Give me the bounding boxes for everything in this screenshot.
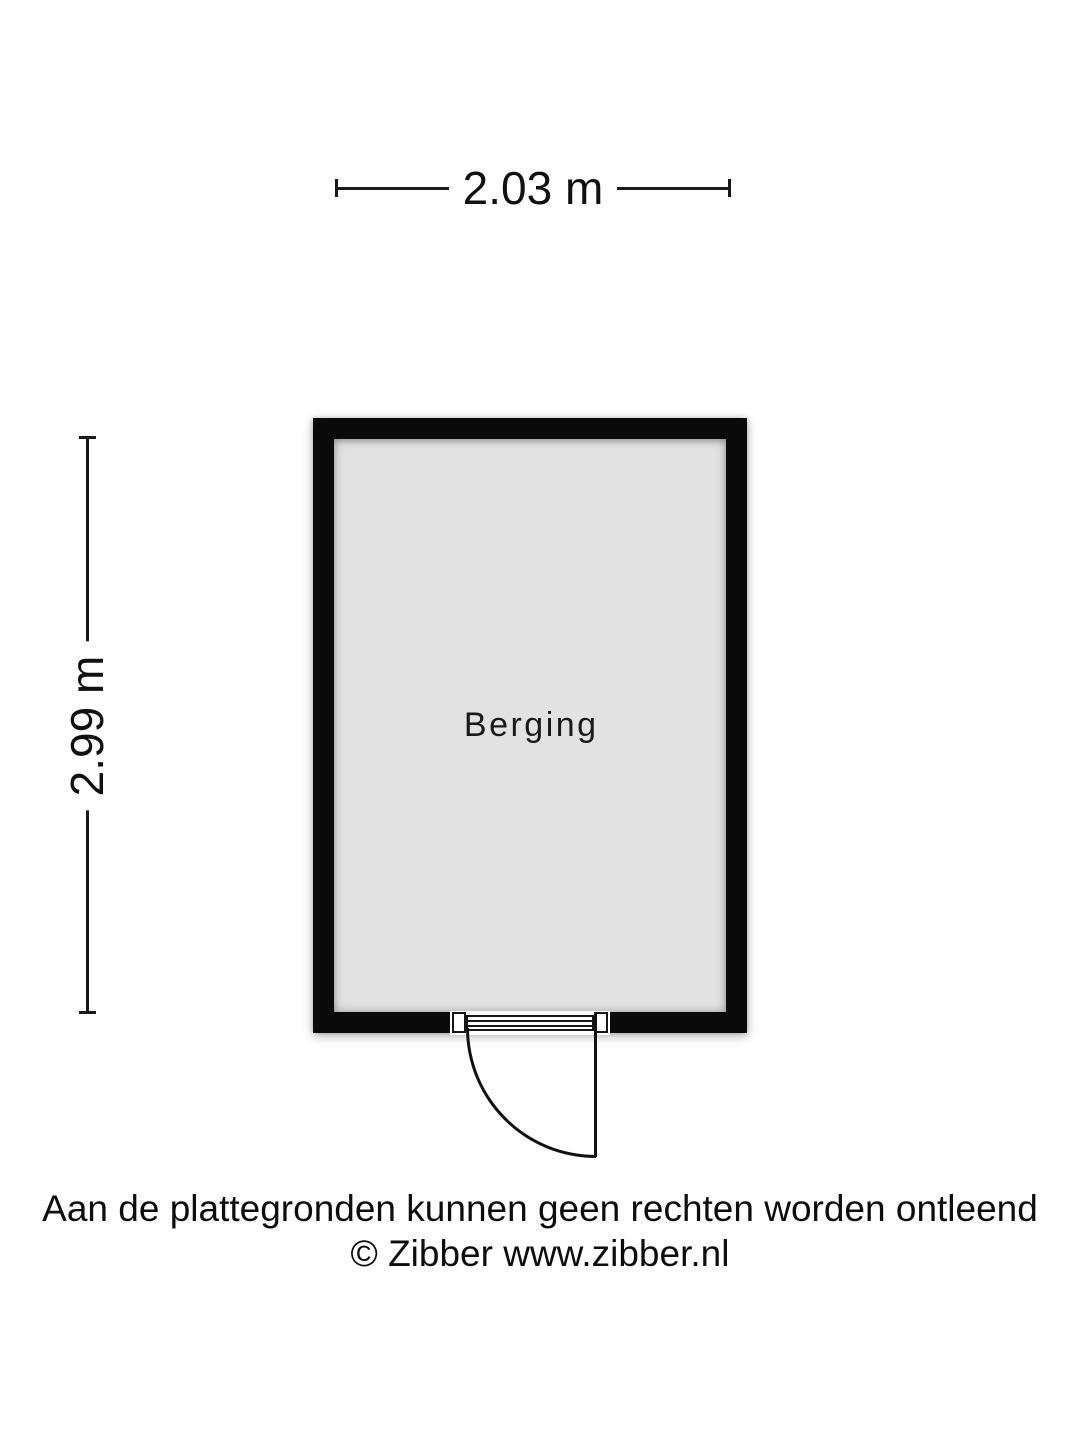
floorplan-page: 2.03 m 2.99 m Berging Aan de plattegrond… [0,0,1080,1440]
footer: Aan de plattegronden kunnen geen rechten… [0,1186,1080,1276]
room-walls: Berging [313,418,747,1033]
door-swing-arc-icon [466,1028,596,1158]
room-label: Berging [461,706,598,745]
door-threshold-line [468,1025,592,1027]
height-dimension-label: 2.99 m [60,642,114,811]
disclaimer-text: Aan de plattegronden kunnen geen rechten… [0,1186,1080,1231]
height-dimension-tick-top [79,436,96,439]
width-dimension: 2.03 m [336,158,730,218]
width-dimension-label: 2.03 m [449,161,618,215]
door-threshold-line [468,1020,592,1022]
height-dimension-tick-bottom [79,1011,96,1014]
room-floor: Berging [334,439,726,1012]
copyright-text: © Zibber www.zibber.nl [0,1231,1080,1276]
door-jamb-left [452,1012,466,1033]
